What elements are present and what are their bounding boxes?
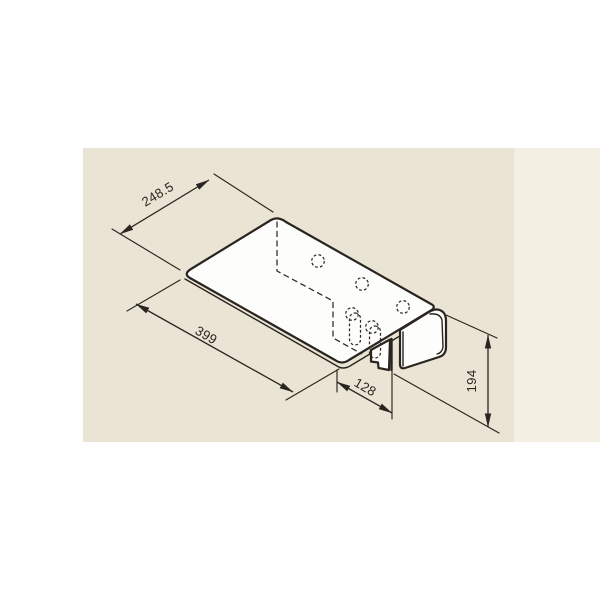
light-background-strip	[514, 148, 600, 442]
dimension-label-194: 194	[464, 370, 479, 393]
technical-drawing-canvas: 248.5 399 128 194	[0, 0, 600, 600]
